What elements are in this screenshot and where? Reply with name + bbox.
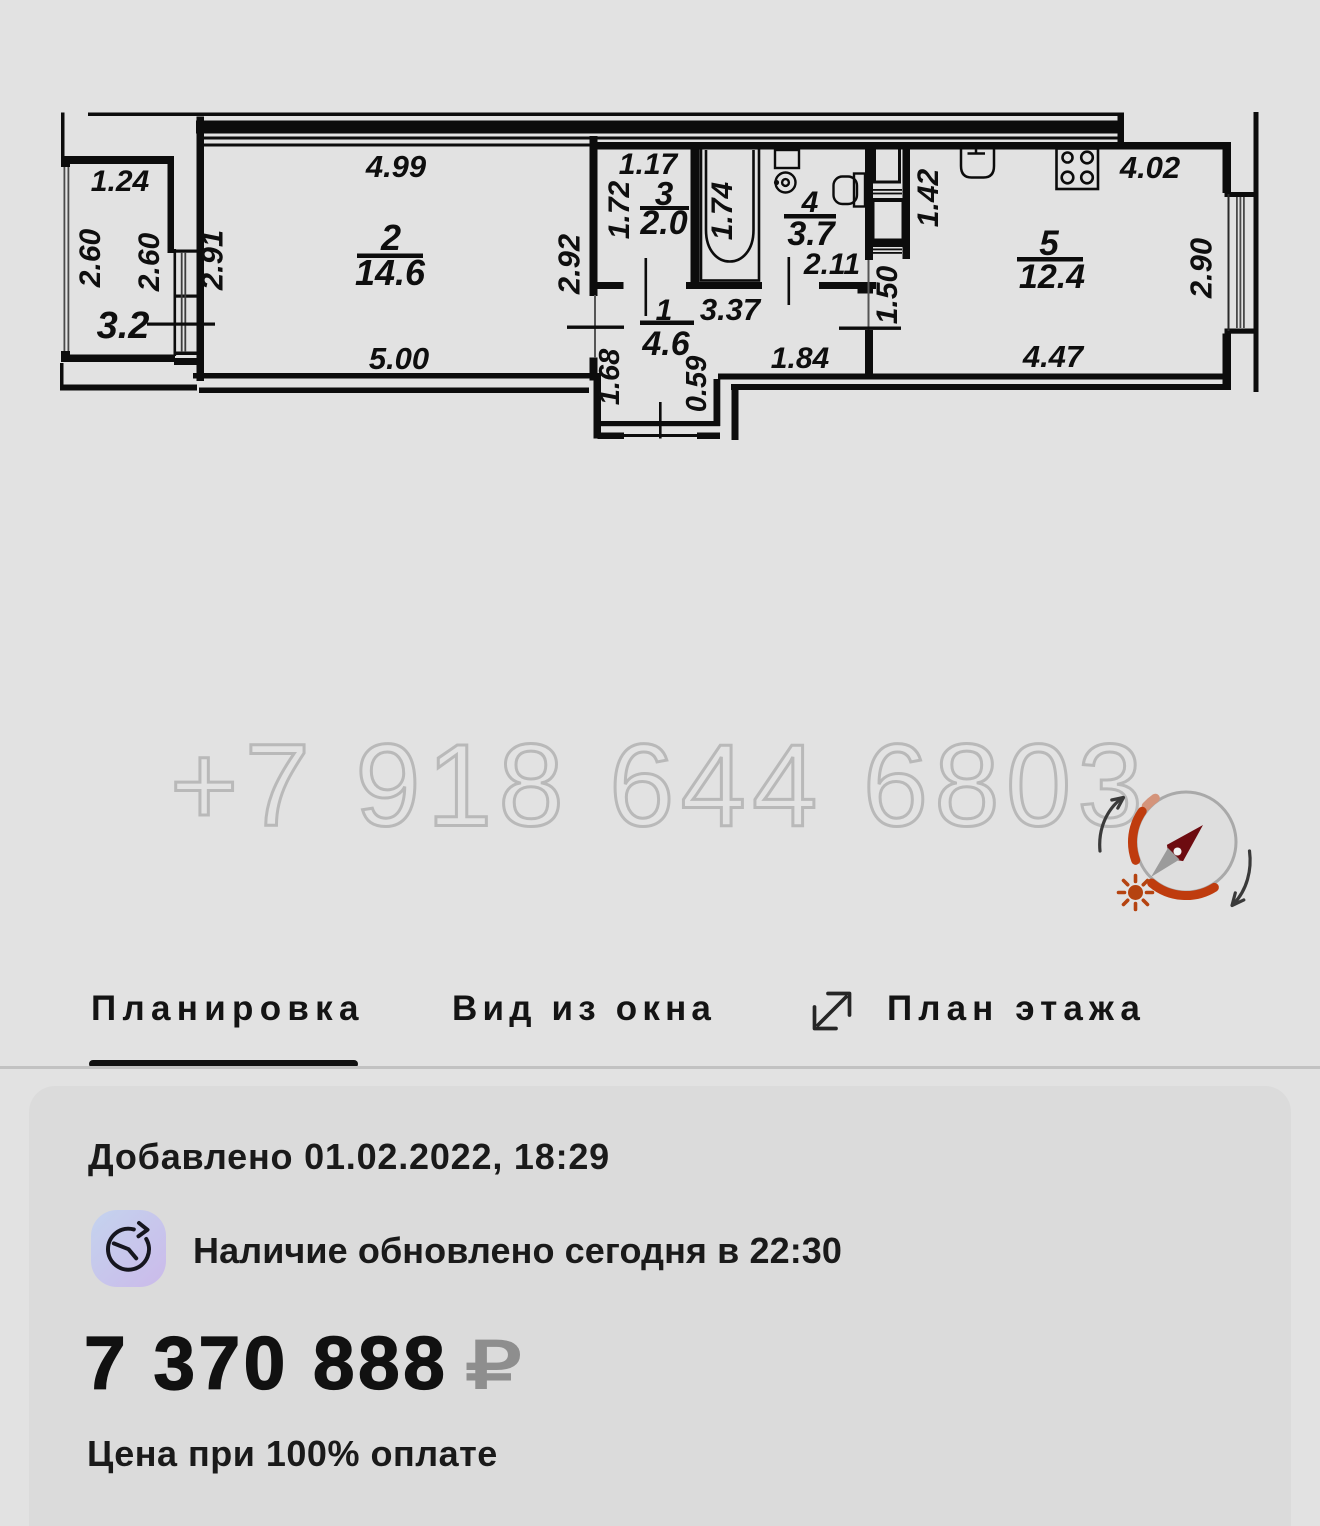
- svg-text:1.42: 1.42: [912, 168, 945, 227]
- svg-text:2.0: 2.0: [639, 204, 687, 242]
- svg-text:5.00: 5.00: [369, 341, 429, 376]
- svg-text:1.84: 1.84: [771, 342, 830, 375]
- svg-text:+7 918 644 6803: +7 918 644 6803: [170, 720, 1149, 851]
- svg-text:1.72: 1.72: [603, 180, 636, 239]
- svg-text:2.91: 2.91: [195, 230, 230, 291]
- svg-text:3.2: 3.2: [97, 305, 150, 347]
- svg-text:12.4: 12.4: [1019, 258, 1085, 296]
- svg-text:1.50: 1.50: [871, 265, 904, 324]
- svg-text:2.90: 2.90: [1183, 238, 1218, 299]
- svg-text:1.74: 1.74: [706, 181, 739, 240]
- svg-text:4.02: 4.02: [1119, 150, 1180, 185]
- svg-text:0.59: 0.59: [681, 356, 713, 412]
- svg-text:14.6: 14.6: [355, 252, 426, 293]
- svg-text:4.99: 4.99: [365, 149, 427, 184]
- svg-text:2.60: 2.60: [74, 228, 107, 288]
- svg-text:1.24: 1.24: [91, 165, 150, 198]
- svg-text:2.11: 2.11: [803, 248, 860, 281]
- svg-text:2.60: 2.60: [133, 232, 166, 292]
- svg-text:3.37: 3.37: [700, 292, 762, 327]
- svg-text:2.92: 2.92: [552, 234, 587, 295]
- svg-text:1.68: 1.68: [594, 348, 626, 405]
- svg-text:4.47: 4.47: [1022, 339, 1085, 374]
